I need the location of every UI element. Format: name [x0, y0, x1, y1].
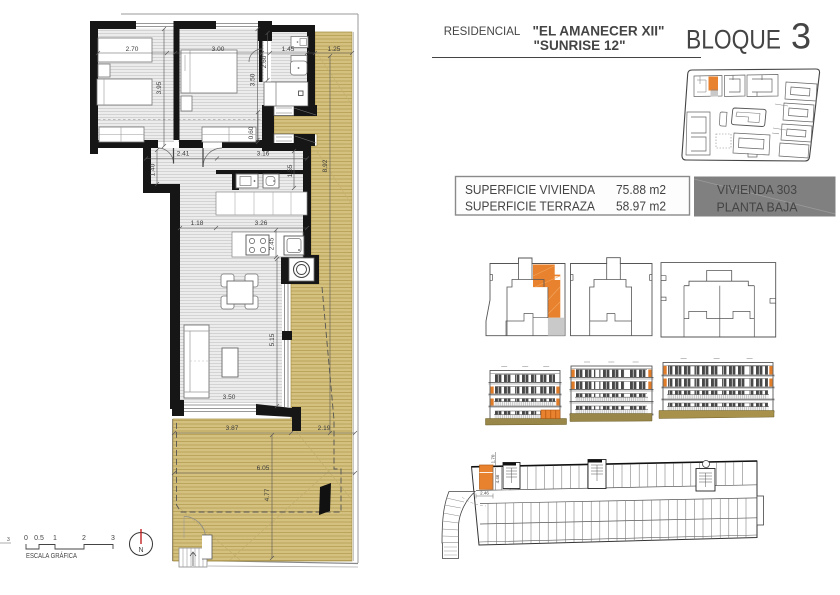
svg-text:4.77: 4.77	[264, 488, 271, 501]
svg-text:58.97 m2: 58.97 m2	[616, 200, 666, 214]
svg-text:0.60: 0.60	[248, 126, 255, 139]
svg-text:RESIDENCIAL: RESIDENCIAL	[444, 24, 521, 38]
svg-text:3: 3	[111, 535, 115, 542]
svg-text:1.18: 1.18	[191, 220, 204, 227]
svg-text:SUPERFICIE TERRAZA: SUPERFICIE TERRAZA	[465, 200, 596, 214]
svg-text:PLANTA BAJA: PLANTA BAJA	[717, 200, 798, 215]
svg-text:1.55: 1.55	[287, 164, 294, 177]
svg-text:3.95: 3.95	[156, 81, 163, 94]
svg-text:2: 2	[82, 535, 86, 542]
svg-text:"SUNRISE 12": "SUNRISE 12"	[534, 38, 626, 53]
svg-text:4.46: 4.46	[495, 474, 500, 483]
svg-text:"EL AMANECER XII": "EL AMANECER XII"	[533, 24, 665, 39]
svg-text:SUPERFICIE VIVIENDA: SUPERFICIE VIVIENDA	[465, 183, 596, 197]
svg-text:3: 3	[7, 537, 10, 543]
svg-text:N: N	[138, 547, 143, 554]
svg-text:ESCALA GRÁFICA: ESCALA GRÁFICA	[26, 551, 77, 560]
svg-text:3: 3	[791, 16, 811, 57]
svg-text:1.25: 1.25	[328, 46, 341, 53]
svg-text:3.87: 3.87	[226, 425, 239, 432]
svg-text:2.41: 2.41	[177, 151, 190, 158]
svg-text:2.19: 2.19	[318, 425, 331, 432]
svg-text:6.05: 6.05	[257, 465, 270, 472]
svg-text:2.45: 2.45	[269, 237, 276, 250]
svg-text:2.70: 2.70	[126, 46, 139, 53]
svg-text:1: 1	[53, 535, 57, 542]
svg-text:BLOQUE: BLOQUE	[686, 25, 781, 55]
svg-text:3.26: 3.26	[255, 220, 268, 227]
svg-text:3.50: 3.50	[250, 73, 257, 86]
svg-text:1.70: 1.70	[491, 454, 496, 463]
svg-text:2.60: 2.60	[261, 55, 268, 68]
svg-text:1.40: 1.40	[150, 163, 157, 176]
svg-text:0: 0	[24, 535, 28, 542]
svg-text:3.16: 3.16	[257, 151, 270, 158]
svg-text:3.50: 3.50	[223, 394, 236, 401]
svg-text:3.00: 3.00	[212, 46, 225, 53]
svg-text:1.45: 1.45	[282, 46, 295, 53]
svg-text:8.92: 8.92	[322, 159, 329, 172]
svg-text:5.15: 5.15	[269, 333, 276, 346]
svg-text:VIVIENDA 303: VIVIENDA 303	[717, 182, 797, 197]
svg-text:75.88 m2: 75.88 m2	[616, 183, 666, 197]
svg-text:0.5: 0.5	[34, 535, 44, 542]
svg-text:2.46: 2.46	[480, 491, 489, 496]
